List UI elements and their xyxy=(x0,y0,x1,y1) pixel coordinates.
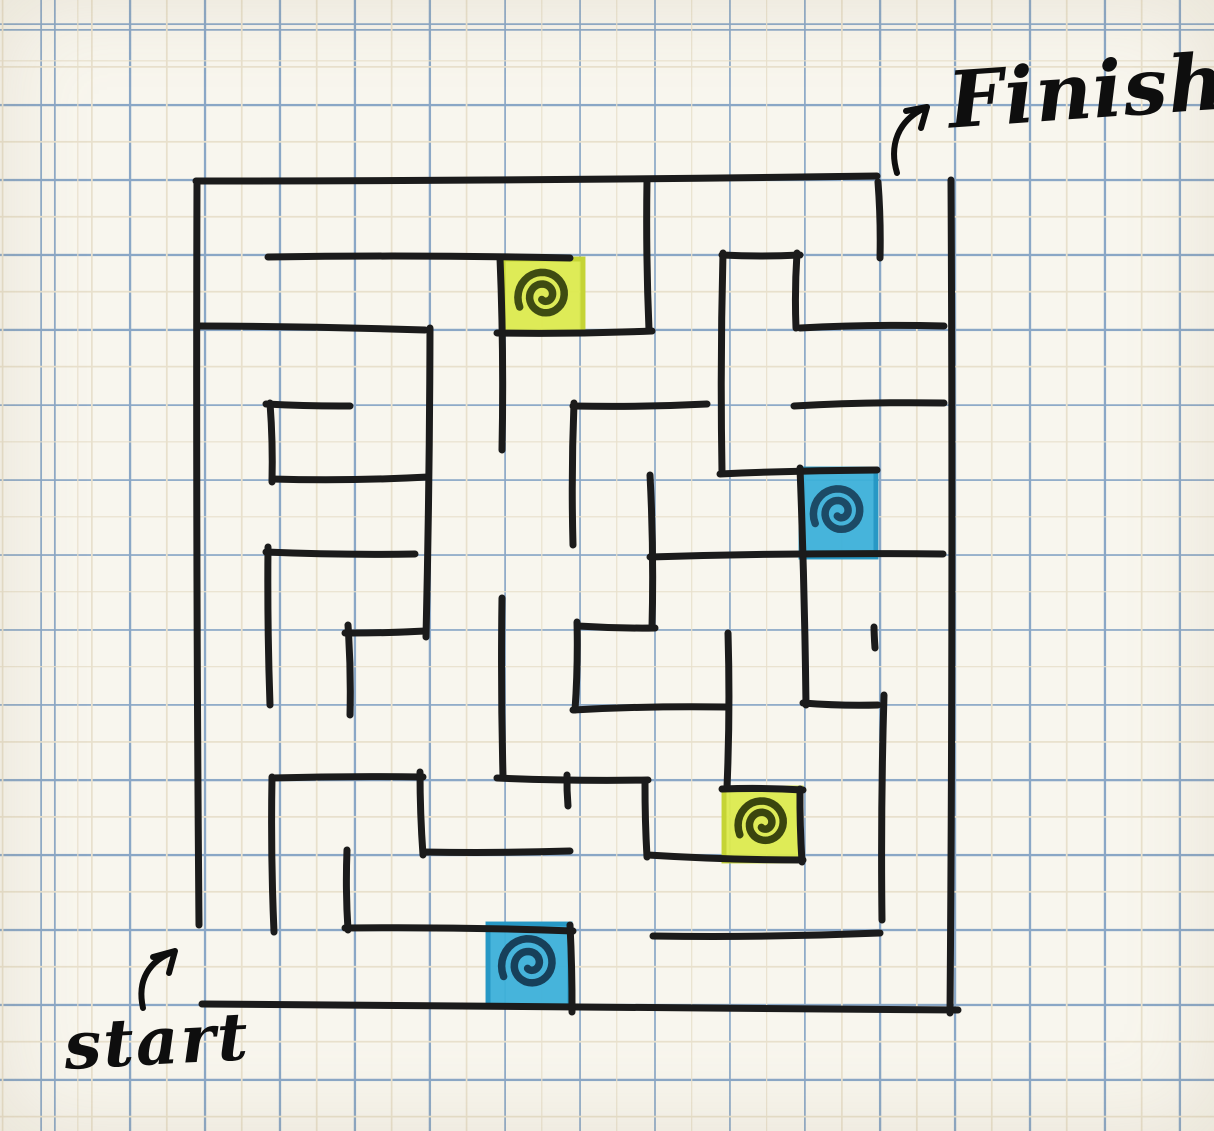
maze-wall-segment xyxy=(882,695,884,920)
maze-wall-segment xyxy=(874,627,875,648)
maze-wall-segment xyxy=(721,253,723,472)
start-label: start xyxy=(62,997,251,1085)
maze-wall-segment xyxy=(800,325,944,328)
maze-wall-segment xyxy=(346,850,348,930)
maze-wall-segment xyxy=(567,775,568,806)
maze-wall-segment xyxy=(426,328,430,637)
maze-wall-segment xyxy=(803,703,878,705)
maze-wall-segment xyxy=(573,404,707,406)
maze-wall-segment xyxy=(878,182,880,258)
maze-wall-segment xyxy=(270,403,272,482)
maze-wall-segment xyxy=(268,547,270,705)
maze-wall-segment xyxy=(722,255,800,256)
maze-wall-segment xyxy=(423,851,570,852)
maze-wall-segment xyxy=(795,253,797,328)
finish-arrow-icon xyxy=(894,107,927,173)
maze-wall-segment xyxy=(266,404,350,406)
maze-wall-segment xyxy=(420,772,423,855)
maze-wall-segment xyxy=(575,622,577,710)
maze-wall-segment xyxy=(272,777,423,778)
maze-wall-segment xyxy=(497,778,648,780)
maze-wall-segment xyxy=(650,475,653,628)
maze-wall-segment xyxy=(647,180,649,330)
maze-drawing xyxy=(0,0,1214,1131)
maze-wall-segment xyxy=(272,477,428,480)
maze-wall-segment xyxy=(272,777,274,932)
maze-wall-segment xyxy=(722,788,803,790)
maze-wall-segment xyxy=(348,625,350,715)
maze-wall-segment xyxy=(653,933,880,936)
maze-wall-segment xyxy=(345,928,573,931)
graph-paper-page: Finish start xyxy=(0,0,1214,1131)
maze-wall-segment xyxy=(196,176,877,181)
maze-wall-segment xyxy=(573,707,727,710)
maze-wall-segment xyxy=(800,789,802,862)
maze-wall-segment xyxy=(500,258,503,450)
maze-wall-segment xyxy=(497,331,652,333)
maze-wall-segment xyxy=(502,598,503,776)
maze-wall-segment xyxy=(199,326,425,330)
start-arrow-icon xyxy=(141,951,175,1008)
maze-wall-segment xyxy=(578,626,655,628)
maze-wall-segment xyxy=(727,633,729,787)
maze-wall-segment xyxy=(197,181,199,925)
maze-wall-segment xyxy=(572,403,574,545)
maze-wall-segment xyxy=(345,631,425,633)
maze-wall-segment xyxy=(950,180,952,1013)
maze-wall-segment xyxy=(202,1004,958,1010)
maze-wall-segment xyxy=(645,783,647,857)
maze-wall-segment xyxy=(794,403,944,406)
maze-wall-segment xyxy=(570,925,572,1012)
maze-wall-segment xyxy=(650,554,943,557)
finish-label: Finish xyxy=(945,36,1214,146)
maze-wall-segment xyxy=(266,552,415,554)
portal-highlights xyxy=(486,257,878,1008)
maze-wall-segment xyxy=(268,256,570,258)
